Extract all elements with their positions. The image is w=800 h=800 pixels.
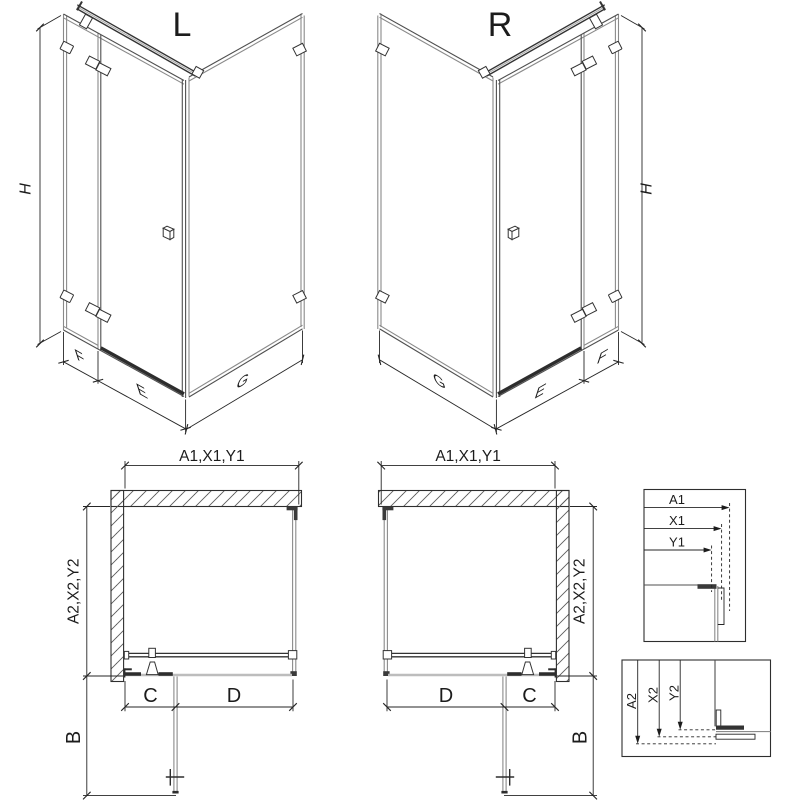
- plan-left-dim-b-label: B: [63, 731, 85, 744]
- plan-left-top-wall: [111, 491, 302, 507]
- iso-left-view: L H F E G: [18, 2, 308, 435]
- plan-left-dim-c-label: C: [143, 685, 157, 707]
- iso-left-dim-h-label: H: [18, 183, 35, 195]
- plan-left-view: A1,X1,Y1 A2,X2,Y2 C D B: [63, 448, 303, 799]
- detail-a1-label: A1: [669, 492, 685, 507]
- iso-right-variant-label: R: [488, 6, 513, 44]
- plan-right-depth-label: A2,X2,Y2: [572, 559, 589, 625]
- iso-left-drawing: [36, 2, 308, 435]
- iso-right-dim-h-label: H: [639, 183, 656, 195]
- iso-left-variant-label: L: [173, 6, 192, 44]
- detail-box-width: A1 X1 Y1: [644, 490, 746, 642]
- plan-right-dim-b-label: B: [570, 731, 592, 744]
- plan-left-width-label: A1,X1,Y1: [179, 448, 245, 465]
- detail-y2-label: Y2: [667, 685, 682, 701]
- detail-x1-label: X1: [669, 513, 685, 528]
- detail-x2-label: X2: [646, 687, 661, 703]
- iso-right-drawing: [374, 2, 646, 435]
- detail-a2-label: A2: [624, 693, 639, 709]
- plan-right-width-label: A1,X1,Y1: [435, 448, 501, 465]
- iso-right-view: R H F E G: [374, 2, 655, 435]
- plan-left-depth-label: A2,X2,Y2: [66, 559, 83, 625]
- iso-right-dim-g-label: G: [431, 369, 448, 394]
- detail-box-depth: A2 X2 Y2: [622, 660, 771, 757]
- diagram-canvas: L H F E G R H F E G A1,X1,Y1 A2,X2,Y2 C …: [0, 0, 800, 800]
- plan-right-side-wall: [556, 491, 569, 682]
- iso-right-dim-f-label: F: [595, 345, 610, 368]
- detail-wall-bracket: [698, 584, 717, 589]
- iso-left-dim-e-label: E: [134, 379, 150, 403]
- iso-left-dim-g-label: G: [234, 369, 251, 394]
- plan-right-dim-c-label: C: [522, 685, 536, 707]
- plan-right-view: A1,X1,Y1 A2,X2,Y2 D C B: [377, 448, 597, 799]
- plan-left-dim-d-label: D: [227, 685, 241, 707]
- iso-right-dim-e-label: E: [532, 379, 548, 403]
- plan-right-top-wall: [379, 491, 570, 507]
- plan-right-dim-d-label: D: [439, 685, 453, 707]
- drawing-sheet: L H F E G R H F E G A1,X1,Y1 A2,X2,Y2 C …: [0, 0, 800, 800]
- plan-left-side-wall: [111, 491, 124, 682]
- iso-left-dim-f-label: F: [72, 345, 87, 368]
- detail-y1-label: Y1: [669, 535, 685, 550]
